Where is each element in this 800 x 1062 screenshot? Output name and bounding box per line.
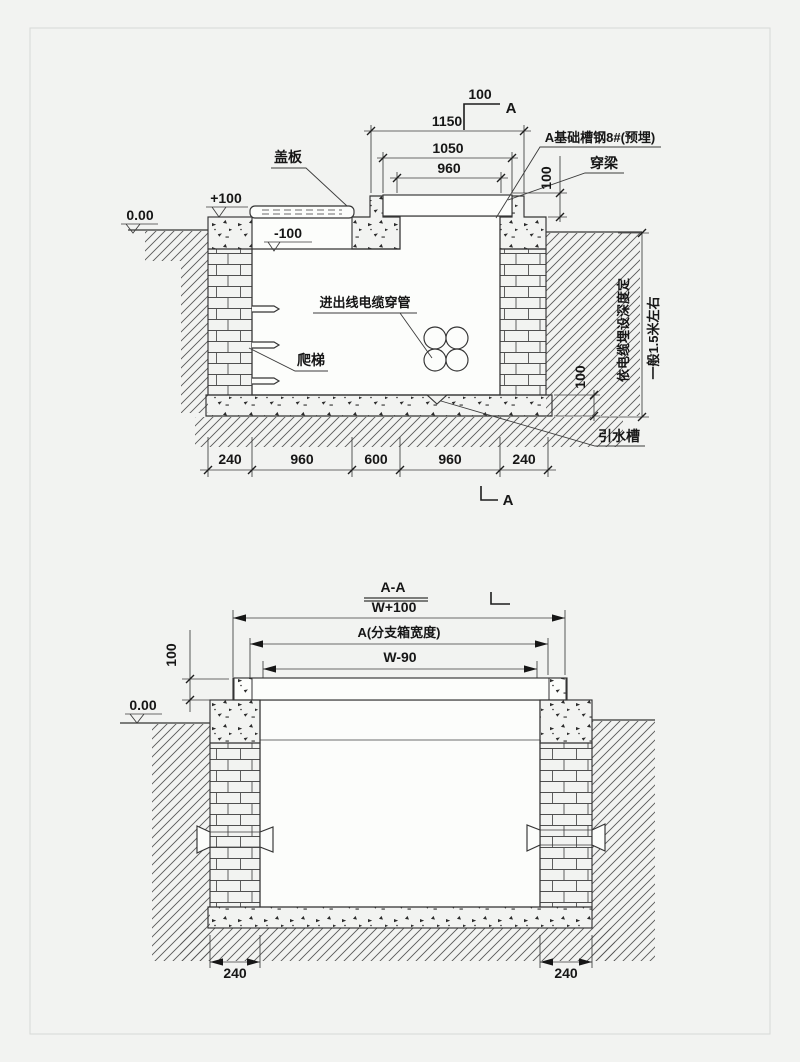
section-title: A-A [381,579,406,595]
corner-section-mark [491,592,510,604]
left-brick-wall [210,743,260,907]
section-cut-offset: 100 [468,86,492,102]
dim-chain-600: 600 [364,451,388,467]
channel-steel-label: A基础槽钢8#(预埋) [545,130,656,145]
beam [383,195,512,216]
slab-end-block-left [234,678,252,700]
elevation-zero: 0.00 [125,697,162,723]
right-coping-concrete [540,700,592,743]
dim-chain-240b: 240 [512,451,536,467]
left-brick-wall [208,249,252,395]
dim-100-label: 100 [163,643,179,667]
top-slab [233,678,567,700]
dim-slab-100: 100 [572,365,588,389]
elevation-minus100-label: -100 [274,225,302,241]
section-cut-mark-top: 100 A [464,86,517,130]
drawing-page: 0.00 +100 -100 1150 1050 960 100 A 盖板 [0,0,800,1062]
top-dimensions: 1150 1050 960 [364,113,531,193]
top-section-view: 0.00 +100 -100 1150 1050 960 100 A 盖板 [121,86,661,509]
dim-chain-960a: 960 [290,451,314,467]
elevation-plus100-label: +100 [210,190,242,206]
dim-w90-label: W-90 [383,649,416,665]
ladder-rung [252,342,279,348]
dim-1050: 1050 [432,140,463,156]
elevation-zero-label: 0.00 [126,207,153,223]
ladder-rung [252,306,279,312]
elevation-zero-label: 0.00 [129,697,156,713]
earth-hatch-left-band [181,261,208,413]
dim-box-width-label: A(分支箱宽度) [357,625,440,640]
dim-w100-label: W+100 [372,599,417,615]
beam-leader [508,173,624,200]
right-brick-wall [540,743,592,907]
depth-note-line2: 一般1.5米左右 [646,296,661,379]
section-cut-label: A [506,100,517,117]
cable-pit-engineering-drawing: 0.00 +100 -100 1150 1050 960 100 A 盖板 [0,0,800,1062]
dim-1150: 1150 [432,113,463,129]
slab-end-block-right [549,678,566,700]
cover-plate-label: 盖板 [274,149,303,165]
base-slab [208,907,592,928]
dim-chain-240a: 240 [218,451,242,467]
elevation-zero: 0.00 [121,207,158,233]
cover-plate-leader [271,168,347,206]
left-coping-concrete [210,700,260,743]
dim-960: 960 [437,160,461,176]
elevation-plus100: +100 [206,190,248,217]
dim-240-right-label: 240 [554,965,578,981]
drain-label: 引水槽 [598,428,640,444]
conduit-label: 进出线电缆穿管 [319,295,410,310]
right-brick-wall [500,249,546,395]
section-mark-bottom: A [481,486,514,509]
earth-hatch-bottom [195,417,623,447]
pit-interior [260,700,540,907]
ladder-rung [252,378,279,384]
depth-note-line1: 依电缆埋设深度定 [616,278,631,382]
section-mark-bottom-label: A [503,492,514,509]
earth-hatch-bottom [180,928,615,961]
dim-240-left-label: 240 [223,965,247,981]
left-coping-concrete [208,217,252,249]
ladder-label: 爬梯 [297,352,325,368]
earth-hatch-left [145,231,208,261]
beam-label: 穿梁 [590,155,619,171]
cover-plate [250,206,354,218]
dim-beam-offset: 100 [538,166,554,190]
dimension-w-minus-90: W-90 [263,649,537,680]
bottom-section-view: A-A W+100 A(分支箱宽度) W-90 [120,579,655,981]
base-slab [206,395,552,416]
dim-chain-960b: 960 [438,451,462,467]
